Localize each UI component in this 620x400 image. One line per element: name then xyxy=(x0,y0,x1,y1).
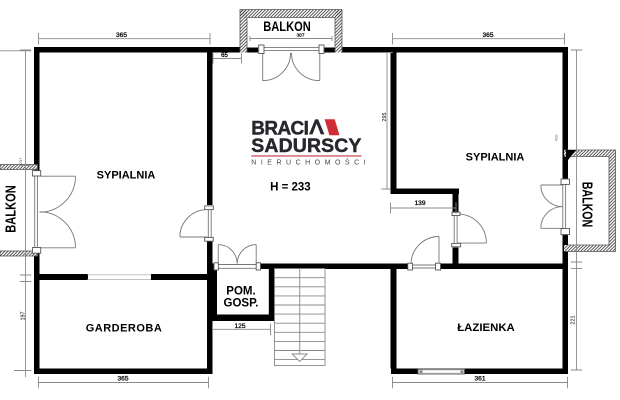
svg-text:65: 65 xyxy=(221,53,228,59)
svg-text:GARDEROBA: GARDEROBA xyxy=(86,323,163,335)
svg-text:SYPIALNIA: SYPIALNIA xyxy=(97,170,156,182)
svg-text:197: 197 xyxy=(21,312,27,321)
svg-text:H = 233: H = 233 xyxy=(270,182,311,194)
svg-text:POM.: POM. xyxy=(226,286,255,298)
svg-text:BALKON: BALKON xyxy=(2,185,19,233)
svg-text:365: 365 xyxy=(116,32,127,39)
svg-text:BALKON: BALKON xyxy=(263,19,311,34)
svg-text:125: 125 xyxy=(234,323,245,330)
svg-text:ŁAZIENKA: ŁAZIENKA xyxy=(457,322,515,334)
svg-text:SYPIALNIA: SYPIALNIA xyxy=(466,152,525,164)
svg-text:SADURSCY: SADURSCY xyxy=(251,135,361,157)
svg-text:361: 361 xyxy=(474,376,485,383)
svg-text:365: 365 xyxy=(482,32,493,39)
svg-text:410: 410 xyxy=(554,134,559,141)
svg-text:221: 221 xyxy=(571,316,577,325)
svg-text:295: 295 xyxy=(382,113,388,122)
svg-text:GOSP.: GOSP. xyxy=(224,298,259,310)
svg-text:365: 365 xyxy=(117,376,128,383)
svg-text:BALKON: BALKON xyxy=(579,182,596,228)
svg-text:NIERUCHOMOŚCI: NIERUCHOMOŚCI xyxy=(251,158,370,167)
svg-text:139: 139 xyxy=(414,200,425,207)
svg-text:237: 237 xyxy=(18,157,23,164)
